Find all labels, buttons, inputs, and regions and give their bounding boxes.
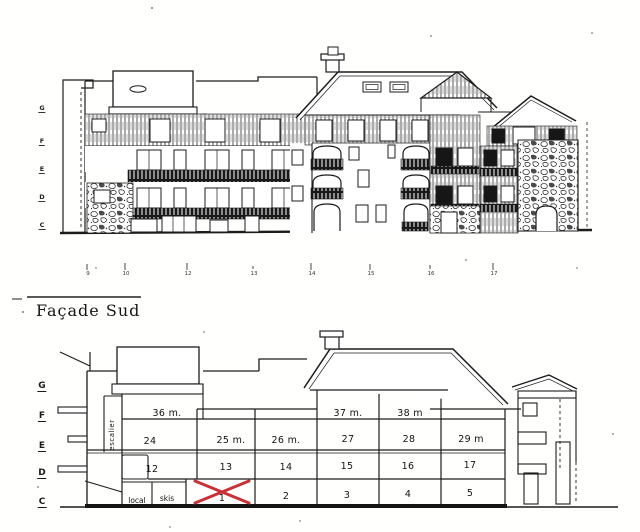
unit-label: 1	[219, 493, 225, 504]
unit-label: 29 m	[458, 434, 484, 445]
area-label: 38 m	[397, 408, 423, 419]
axis-tick-label: 16	[428, 271, 435, 277]
title-overline	[12, 297, 141, 299]
unit-label: 25 m.	[217, 435, 246, 446]
unit-label: 28	[403, 434, 416, 445]
unit-label: 15	[341, 461, 354, 472]
axis-tick-marks	[87, 263, 493, 270]
unit-label: 3	[344, 490, 350, 501]
floor-letter: G	[37, 381, 46, 392]
axis-tick-label: 17	[491, 271, 498, 277]
axis-tick-label: 9	[86, 271, 90, 277]
ski-room-label: skis	[160, 494, 174, 503]
area-label: 36 m.	[153, 408, 182, 419]
unit-label: 5	[467, 488, 473, 499]
floor-letter: C	[38, 497, 47, 508]
ski-room-label: local	[128, 496, 145, 505]
axis-tick-label: 14	[309, 271, 316, 277]
unit-label: 13	[220, 462, 233, 473]
floor-letter: D	[37, 468, 46, 479]
unit-label: 14	[280, 462, 293, 473]
floor-letter: F	[38, 411, 46, 422]
unit-label: 4	[405, 489, 411, 500]
stair-label: escalier	[108, 419, 116, 450]
architectural-drawing-page: Façade Sud G F E D C 9 10 12 13 14 15 16…	[0, 0, 640, 532]
floor-letter: E	[39, 165, 45, 174]
unit-label: 17	[464, 460, 477, 471]
axis-tick-label: 13	[251, 271, 258, 277]
axis-tick-label: 10	[123, 271, 130, 277]
area-label: 37 m.	[334, 408, 363, 419]
bottom-unit-diagram	[58, 331, 618, 508]
axis-tick-label: 15	[368, 271, 375, 277]
unit-label: 12	[146, 464, 159, 475]
unit-label: 2	[283, 491, 289, 502]
floor-letter: E	[38, 441, 46, 452]
unit-label: 16	[402, 461, 415, 472]
axis-tick-label: 12	[185, 271, 192, 277]
unit-label: 24	[144, 436, 157, 447]
floor-letter: G	[38, 104, 45, 113]
unit-label: 27	[342, 434, 355, 445]
line-art-canvas	[0, 0, 640, 532]
floor-letter: D	[38, 193, 45, 202]
unit-label: 26 m.	[272, 435, 301, 446]
floor-letter: C	[39, 221, 46, 230]
title: Façade Sud	[36, 301, 140, 320]
floor-letter: F	[39, 137, 45, 146]
top-elevation-drawing	[60, 47, 592, 233]
